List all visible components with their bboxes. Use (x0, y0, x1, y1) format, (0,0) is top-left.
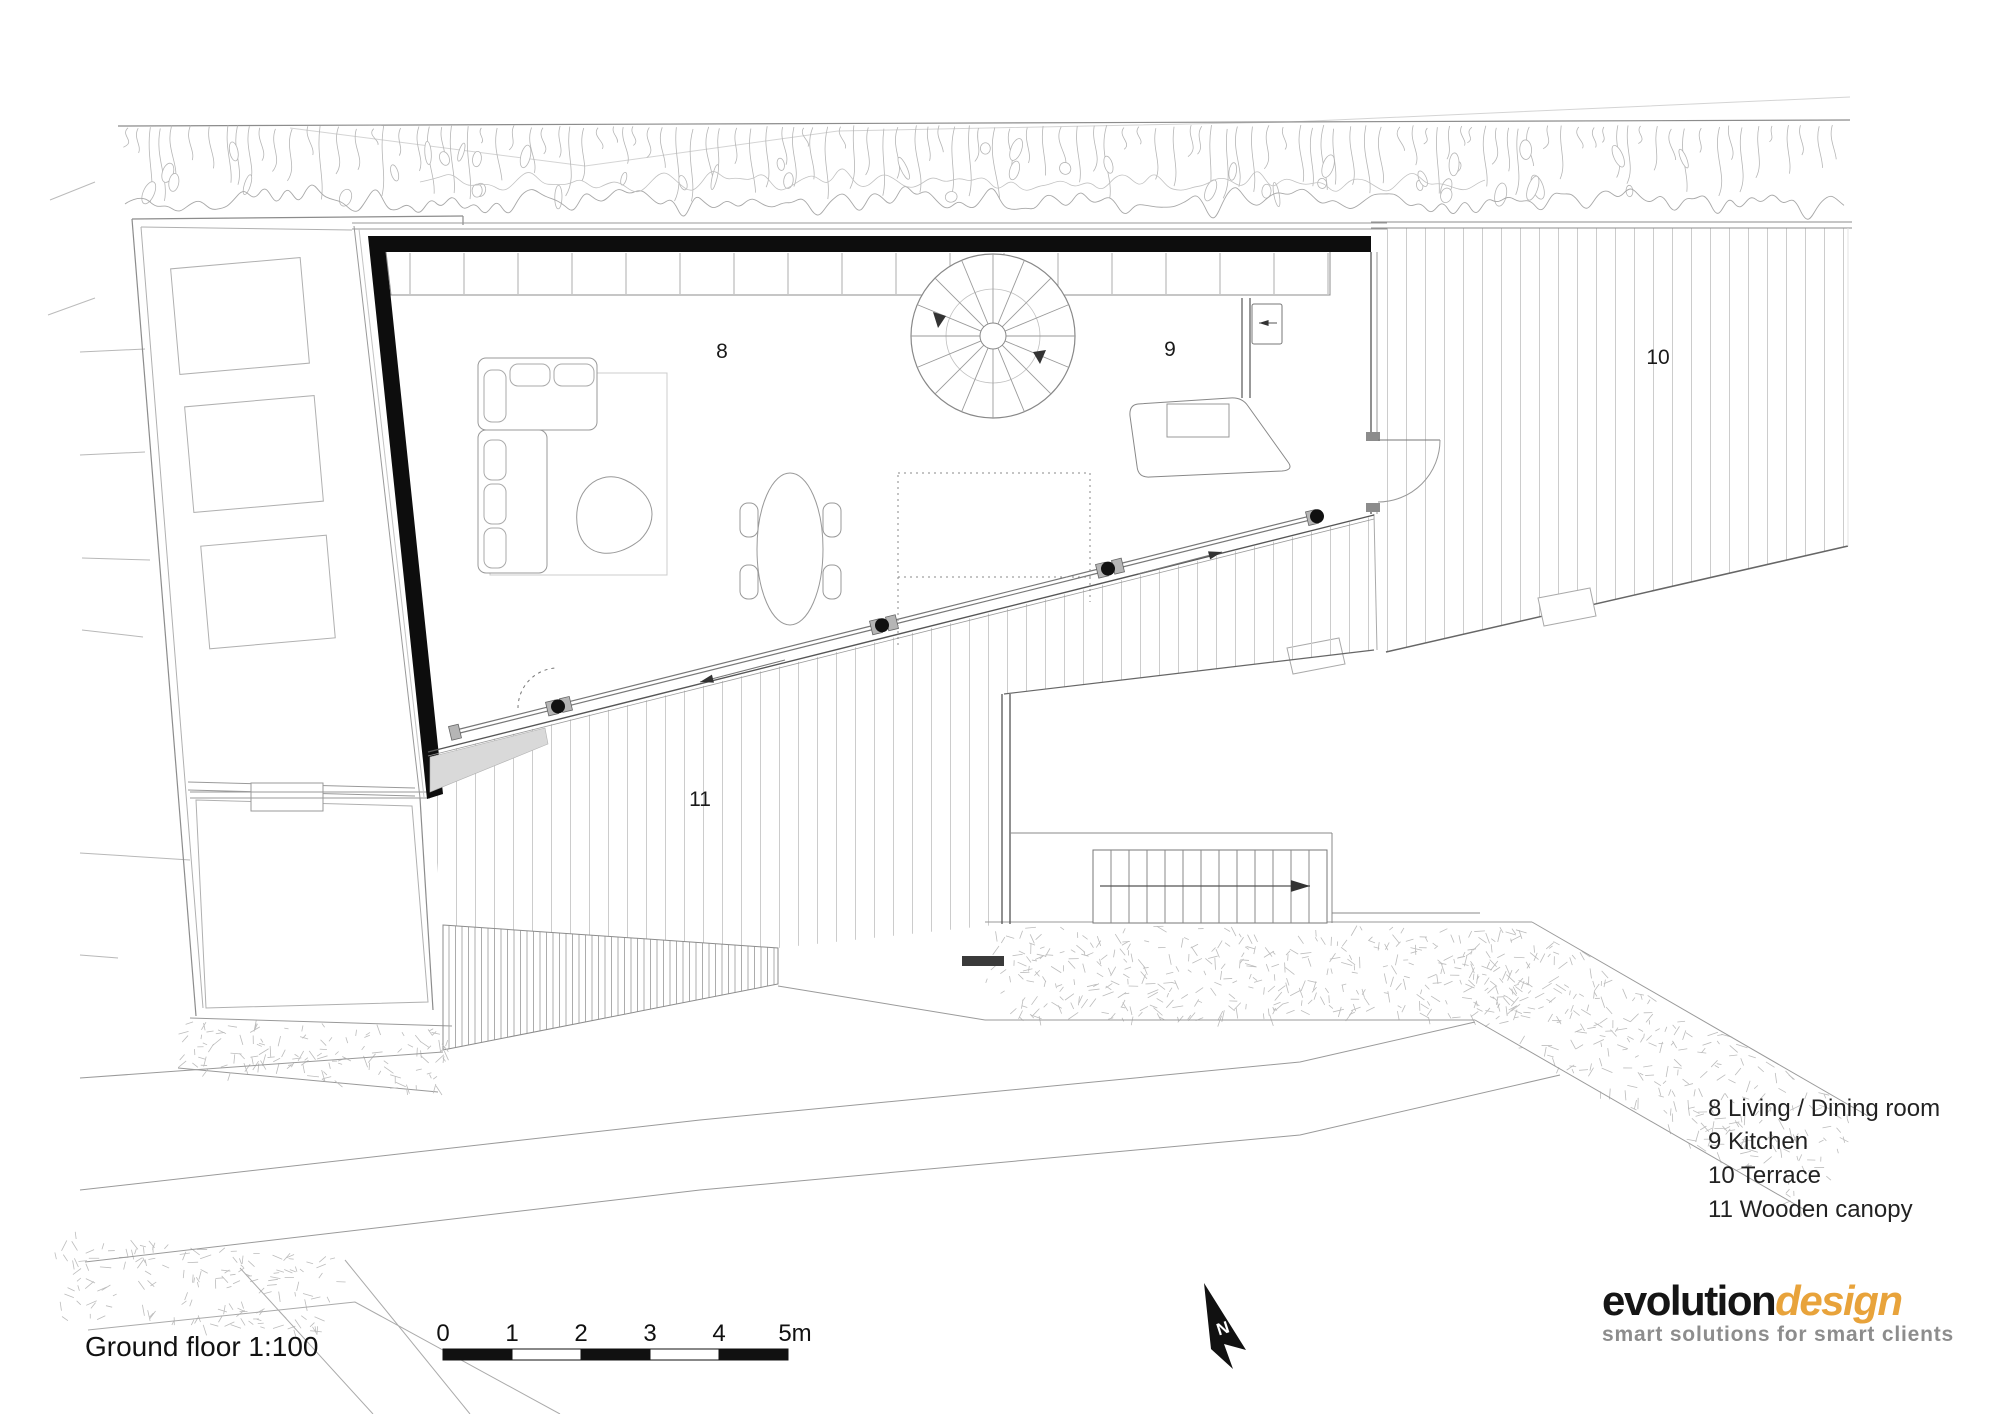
scale-tick: 0 (436, 1320, 449, 1348)
terrain-contour-lines (80, 349, 190, 958)
logo-tagline: smart solutions for smart clients (1602, 1323, 1954, 1347)
logo-wordmark: evolutiondesign (1602, 1280, 1954, 1322)
floor-plan-drawing (0, 0, 2000, 1414)
scale-tick: 1 (505, 1320, 518, 1348)
gravel-paths (55, 926, 1849, 1337)
room-label-living: 8 (716, 340, 728, 364)
scale-tick: 2 (574, 1320, 587, 1348)
room-label-kitchen: 9 (1164, 338, 1176, 362)
scale-tick: 3 (643, 1320, 656, 1348)
logo-secondary: design (1775, 1277, 1901, 1324)
kitchen-fittings (1130, 298, 1290, 477)
wooden-canopy-area (430, 516, 1374, 1050)
sheet-title: Ground floor 1:100 (85, 1331, 319, 1363)
scale-bar (443, 1349, 788, 1360)
company-logo: evolutiondesign smart solutions for smar… (1602, 1280, 1954, 1347)
logo-primary: evolution (1602, 1277, 1775, 1324)
scale-tick: 5m (778, 1320, 811, 1348)
legend-item: 11 Wooden canopy (1708, 1196, 1913, 1224)
spiral-staircase (911, 254, 1075, 418)
scale-tick: 4 (712, 1320, 725, 1348)
courtyard-and-stairs (962, 694, 1480, 966)
legend-item: 9 Kitchen (1708, 1128, 1808, 1156)
room-label-canopy: 11 (689, 788, 711, 812)
legend-item: 8 Living / Dining room (1708, 1095, 1940, 1123)
room-label-terrace: 10 (1646, 346, 1669, 370)
floor-plan-sheet: 8 9 10 11 8 Living / Dining room 9 Kitch… (0, 0, 2000, 1414)
legend-item: 10 Terrace (1708, 1162, 1821, 1190)
